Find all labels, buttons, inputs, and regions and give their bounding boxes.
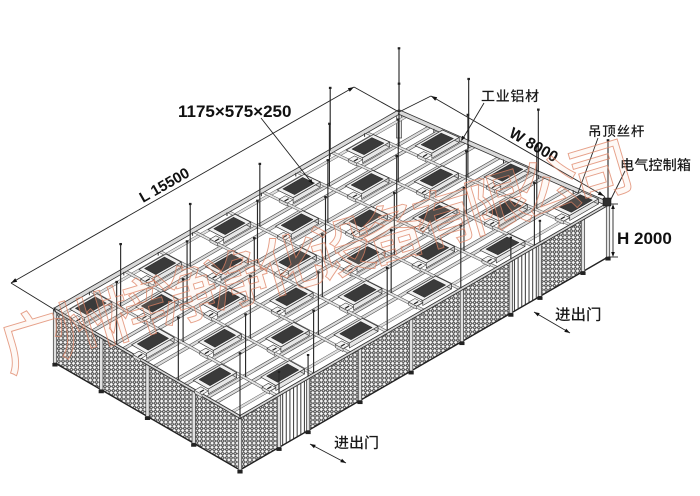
svg-text:H 2000: H 2000: [617, 229, 672, 248]
svg-text:1175×575×250: 1175×575×250: [178, 102, 291, 121]
